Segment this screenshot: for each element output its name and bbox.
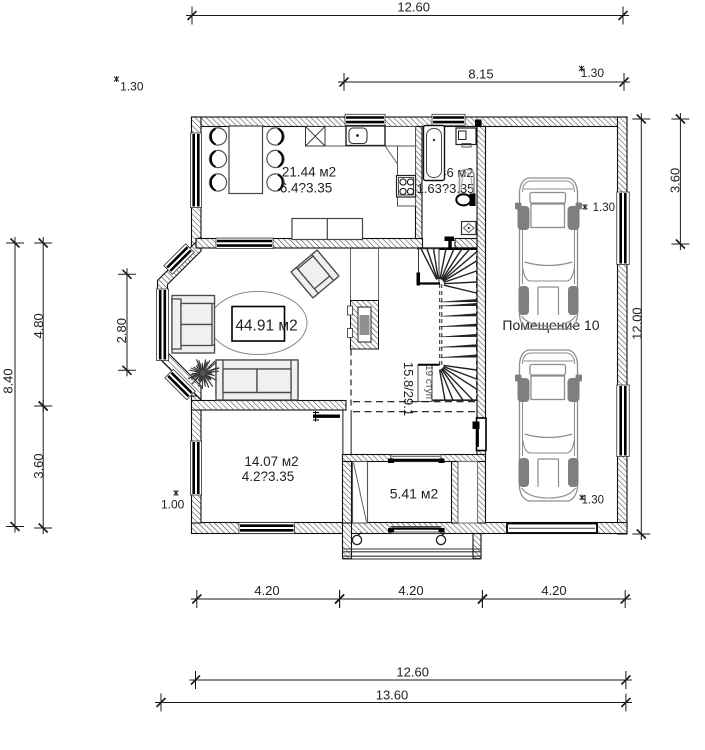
svg-text:Помещение 10: Помещение 10 <box>502 317 599 333</box>
svg-text:1.30: 1.30 <box>582 495 604 507</box>
svg-text:4.20: 4.20 <box>541 583 566 598</box>
svg-text:4.80: 4.80 <box>31 313 46 338</box>
svg-text:8.15: 8.15 <box>468 67 493 82</box>
svg-text:13.60: 13.60 <box>376 688 409 703</box>
svg-text:19 ступ: 19 ступ <box>423 365 434 399</box>
svg-text:8.40: 8.40 <box>1 368 16 393</box>
svg-text:12.60: 12.60 <box>396 665 429 680</box>
svg-text:2.80: 2.80 <box>114 318 129 343</box>
svg-text:3.60: 3.60 <box>668 168 683 193</box>
svg-text:5.41 м2: 5.41 м2 <box>390 486 439 502</box>
svg-text:6.4?3.35: 6.4?3.35 <box>280 181 333 196</box>
svg-text:4.20: 4.20 <box>254 583 279 598</box>
svg-text:12.00: 12.00 <box>630 307 645 340</box>
svg-text:1.30: 1.30 <box>120 80 144 94</box>
svg-text:44.91 м2: 44.91 м2 <box>235 318 297 335</box>
svg-text:4.20: 4.20 <box>398 583 423 598</box>
svg-text:12.60: 12.60 <box>397 0 430 15</box>
svg-text:1.30: 1.30 <box>581 66 605 80</box>
svg-text:14.07 м2: 14.07 м2 <box>244 454 298 469</box>
svg-text:1.30: 1.30 <box>593 202 615 214</box>
svg-text:4.2?3.35: 4.2?3.35 <box>242 469 295 484</box>
svg-text:15.8/29.1: 15.8/29.1 <box>401 362 416 416</box>
svg-text:1.00: 1.00 <box>161 498 185 512</box>
svg-text:21.44 м2: 21.44 м2 <box>282 165 336 180</box>
svg-text:3.60: 3.60 <box>31 453 46 478</box>
